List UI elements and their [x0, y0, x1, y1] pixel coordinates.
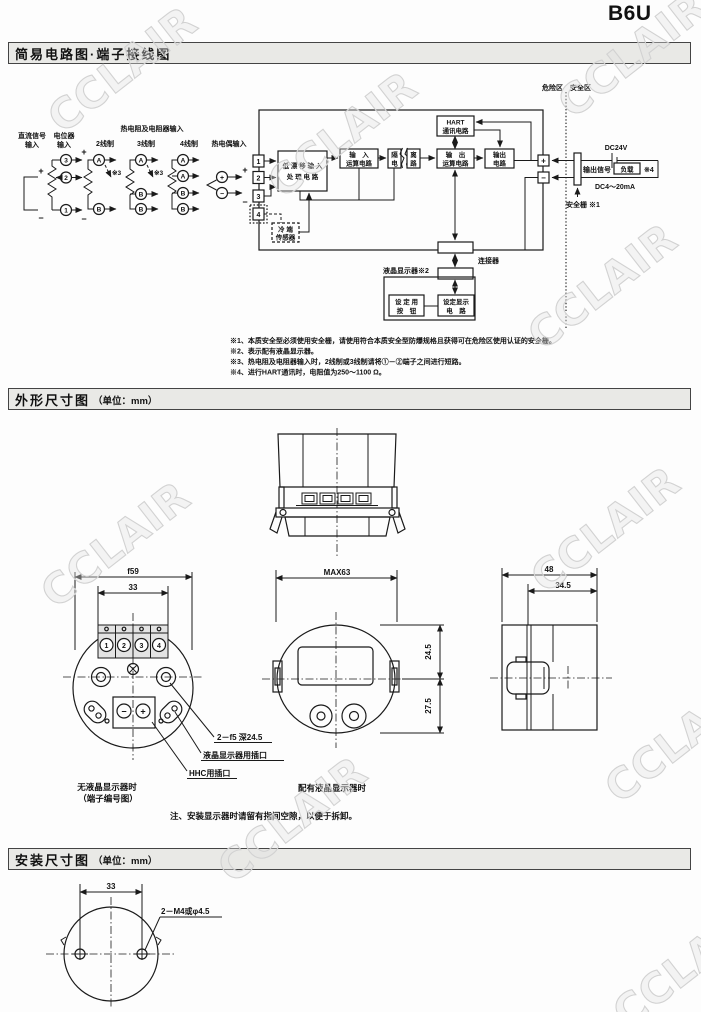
- dim-34-5: 34.5: [555, 581, 571, 590]
- pot-input-label: 电位器: [54, 131, 76, 140]
- power-terminal-block: [113, 697, 155, 728]
- zone-safe-label: 安全区: [570, 83, 591, 92]
- setting-display-line1: 设定显示: [443, 297, 470, 306]
- block-low-drift-line1: 低 漂 移 输 入: [282, 161, 323, 170]
- block-hart-line2: 通讯电路: [443, 126, 470, 135]
- circuit-notes: ※1、本质安全型必须使用安全栅，请使用符合本质安全型防爆规格且获得可在危险区使用…: [230, 336, 556, 377]
- rtd-b: B: [97, 207, 102, 214]
- note3-ref: ※3: [154, 169, 163, 177]
- terminal-4: 4: [257, 212, 261, 219]
- output-range-label: DC4～20mA: [595, 184, 635, 191]
- terminal-3: 3: [257, 194, 261, 201]
- dim-24-5: 24.5: [424, 644, 433, 660]
- iso-left-line2: 电: [391, 159, 398, 168]
- button-left: [310, 705, 332, 727]
- iso-left-line1: 隔: [391, 150, 398, 159]
- rtd-3wire-symbol: A B B ※3: [126, 155, 163, 215]
- note-1: ※1、本质安全型必须使用安全栅，请使用符合本质安全型防爆规格且获得可在危险区使用…: [230, 336, 556, 345]
- button-right: [342, 704, 366, 728]
- block-low-drift-line2: 处 理 电 路: [286, 172, 319, 181]
- tc-minus-circle: −: [220, 191, 224, 198]
- rtd-header-label: 热电阻及电阻器输入: [121, 124, 184, 133]
- block-input-calc-line1: 输 入: [349, 150, 369, 159]
- block-output-line1: 输出: [493, 150, 506, 159]
- pot-input-label2: 输入: [57, 140, 71, 149]
- tc-input-label: 热电偶输入: [212, 139, 247, 148]
- tc-plus-circle: +: [220, 175, 224, 182]
- lcd-unit-label: 液晶显示器※2: [383, 266, 429, 275]
- housing-elevation-drawing: [270, 428, 405, 556]
- rtd-2wire-symbol: A B ※3: [84, 155, 121, 215]
- dc-input-label: 直流信号: [18, 131, 46, 140]
- circuit-diagram: 危险区 安全区 直流信号 输入 电位器 输入 热电阻及电阻器输入 2线制 3线制…: [18, 83, 658, 377]
- terminal-2: 2: [257, 176, 261, 183]
- pot-minus: −: [81, 214, 86, 224]
- iso-right-line2: 路: [410, 159, 417, 168]
- cold-junction-line2: 传感器: [275, 233, 296, 242]
- datasheet-page: CCLAIR CCLAIR CCLAIR CCLAIR CCLAIR CCLAI…: [0, 0, 701, 1012]
- note3-ref: ※3: [112, 169, 121, 177]
- rtd-4wire-symbol: A A B B: [168, 155, 199, 215]
- setting-button-line1: 设 定 用: [395, 297, 418, 306]
- rtd-b: B: [181, 191, 186, 198]
- connector-upper: [438, 242, 473, 253]
- page-drawings: 危险区 安全区 直流信号 输入 电位器 输入 热电阻及电阻器输入 2线制 3线制…: [0, 0, 701, 1012]
- block-output-calc-line2: 运算电路: [443, 159, 470, 168]
- output-minus-sign: −: [541, 174, 546, 183]
- dim-27-5: 27.5: [424, 698, 433, 714]
- dim-33: 33: [129, 583, 138, 592]
- pot-terminal-1: 1: [64, 208, 68, 215]
- rtd-4wire-label: 4线制: [180, 139, 198, 148]
- output-signal-label: 输出信号: [583, 165, 611, 174]
- block-output-line2: 电路: [493, 159, 507, 168]
- rtd-a: A: [181, 174, 186, 181]
- side-view-drawing: 48 34.5: [490, 565, 612, 730]
- pot-terminal-3: 3: [64, 158, 68, 165]
- thermocouple-symbol: + − + −: [207, 165, 248, 207]
- rtd-a: A: [181, 158, 186, 165]
- caption-with-lcd: 配有液晶显示器时: [298, 783, 367, 793]
- setting-button-line2: 按 钮: [397, 306, 417, 315]
- block-hart-line1: HART: [446, 120, 464, 127]
- pot-terminal-2: 2: [64, 175, 68, 182]
- rtd-3wire-label: 3线制: [137, 139, 155, 148]
- rtd-a: A: [139, 158, 144, 165]
- tc-minus: −: [242, 197, 247, 207]
- front-terminal-3: 3: [140, 643, 144, 650]
- front-plus: +: [140, 707, 145, 717]
- output-plus-sign: +: [541, 157, 546, 166]
- dc24v-label: DC24V: [605, 145, 628, 152]
- potentiometer-symbol: 3 2 1 + −: [48, 147, 87, 224]
- front-terminal-1: 1: [105, 643, 109, 650]
- dc-input-symbol: + −: [24, 166, 44, 223]
- front-terminal-2: 2: [122, 643, 126, 650]
- load-label: 负载: [621, 165, 635, 174]
- caption-terminal-numbering: （端子编号图）: [78, 794, 138, 804]
- setting-display-line2: 电 路: [446, 306, 466, 315]
- note4-ref: ※4: [644, 166, 654, 174]
- front-terminal-4: 4: [157, 643, 161, 650]
- note-2: ※2、表示配有液晶显示器。: [230, 347, 318, 356]
- cold-junction-line1: 冷 端: [278, 225, 293, 234]
- outline-note: 注、安装显示器时请留有指间空隙，以便于拆卸。: [170, 811, 357, 821]
- connector-label: 连接器: [478, 256, 500, 265]
- safety-barrier-label: 安全栅 ※1: [566, 200, 600, 209]
- label-lcd-socket: 液晶显示器用插口: [203, 750, 267, 760]
- block-input-calc-line2: 运算电路: [346, 159, 373, 168]
- pot-plus: +: [81, 147, 86, 157]
- iso-right-line1: 离: [410, 150, 417, 159]
- zone-hazard-label: 危险区: [541, 83, 563, 92]
- safety-barrier-symbol: [574, 153, 581, 185]
- rtd-b: B: [139, 207, 144, 214]
- dim-f59: f59: [127, 567, 139, 576]
- lcd-view-drawing: MAX63 24.5 27.5 配有液晶显示器时 注、安装显示器时请留有指间空隙…: [170, 568, 444, 821]
- dc-minus: −: [38, 213, 43, 223]
- rtd-b: B: [181, 207, 186, 214]
- dc-plus: +: [38, 166, 43, 176]
- front-minus: −: [121, 707, 126, 717]
- terminal-1: 1: [257, 159, 261, 166]
- note-3: ※3、热电阻及电阻器输入时，2线制或3线制请将①－②端子之间进行短路。: [230, 357, 466, 366]
- note-4: ※4、进行HART通讯时，电阻值为250～1100 Ω。: [230, 368, 386, 377]
- tc-plus: +: [242, 165, 247, 175]
- block-output-calc-line1: 输 出: [446, 150, 466, 159]
- rtd-b: B: [139, 192, 144, 199]
- side-connector: [507, 662, 549, 694]
- block-low-drift: [278, 151, 327, 191]
- dim-mount-33: 33: [107, 882, 116, 891]
- mounting-drawing: 33 2－M4或φ4.5: [46, 882, 222, 1008]
- dim-48: 48: [545, 565, 554, 574]
- dc-input-label2: 输入: [25, 140, 39, 149]
- caption-no-lcd: 无液晶显示器时: [76, 782, 137, 792]
- rtd-a: A: [97, 158, 102, 165]
- dim-max63: MAX63: [324, 568, 351, 577]
- label-hhc-socket: HHC用插口: [189, 768, 230, 778]
- label-depth-holes: 2－f5 深24.5: [217, 732, 263, 742]
- rtd-2wire-label: 2线制: [96, 139, 114, 148]
- front-view-drawing: f59 33 1 2 3 4: [63, 567, 284, 804]
- label-mount-holes: 2－M4或φ4.5: [161, 906, 210, 916]
